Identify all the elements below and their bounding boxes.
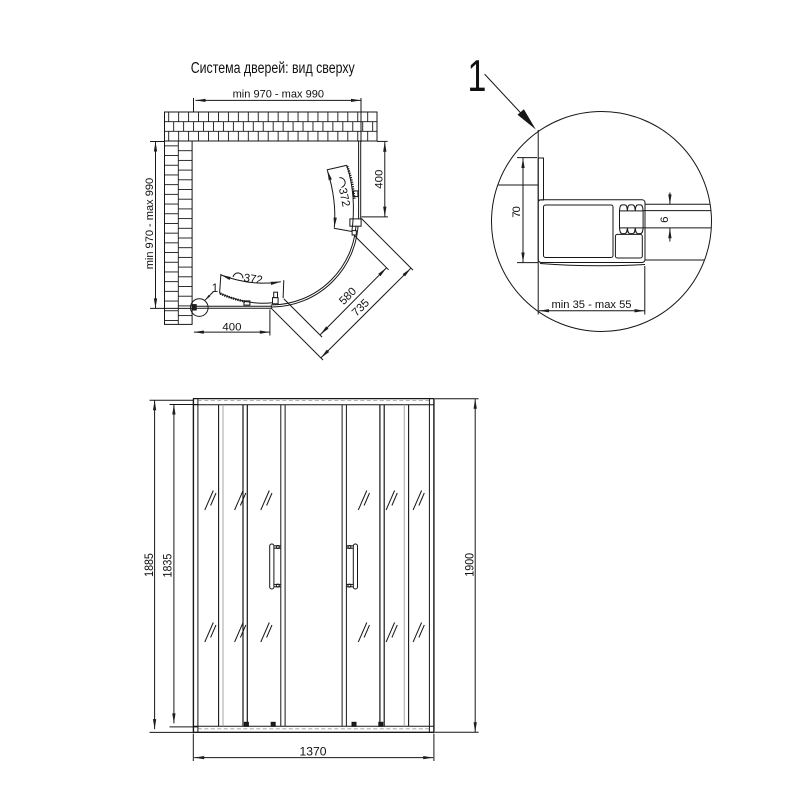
svg-text:1370: 1370	[300, 744, 327, 758]
svg-text:min 970 - max 990: min 970 - max 990	[144, 178, 156, 269]
svg-text:1835: 1835	[161, 554, 175, 578]
svg-text:735: 735	[350, 297, 372, 319]
svg-text:400: 400	[222, 321, 241, 333]
svg-text:min 970 - max 990: min 970 - max 990	[233, 89, 324, 101]
svg-text:1885: 1885	[142, 553, 156, 577]
svg-text:6: 6	[659, 217, 671, 223]
svg-text:1: 1	[468, 51, 487, 101]
svg-text:372: 372	[336, 187, 352, 208]
svg-text:1: 1	[212, 283, 218, 295]
svg-text:372: 372	[243, 272, 263, 287]
svg-text:min 35 - max 55: min 35 - max 55	[552, 299, 632, 311]
svg-text:70: 70	[511, 206, 523, 218]
svg-text:400: 400	[373, 170, 385, 189]
svg-text:Система дверей: вид сверху: Система дверей: вид сверху	[191, 60, 355, 77]
svg-text:1900: 1900	[462, 553, 476, 577]
